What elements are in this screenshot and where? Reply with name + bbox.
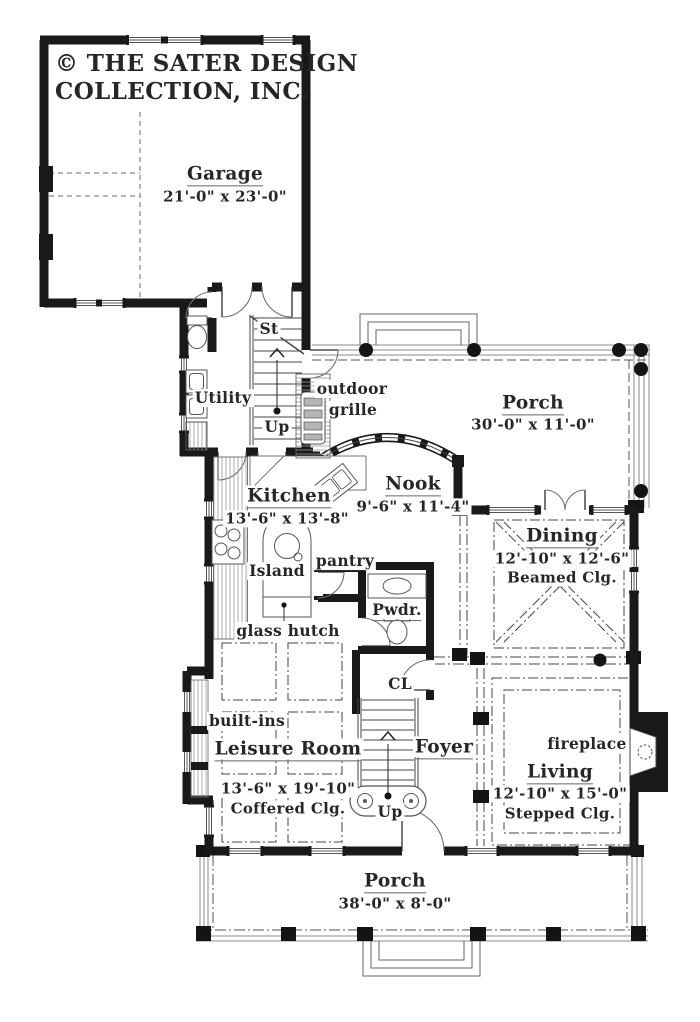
copyright-line1: © THE SATER DESIGN [55,50,358,78]
foyer-label: Foyer [413,736,475,757]
powder-label: Pwdr. [370,601,423,619]
built-ins-shelving [191,680,208,797]
kitchen-dims: 13'-6" x 13'-8" [223,510,351,527]
garage-ceiling-lines [49,112,140,299]
porch-top-dims: 30'-0" x 11'-0" [469,416,597,433]
fireplace-structure [630,712,668,792]
dining-dims: 12'-10" x 12'-6" [493,550,632,567]
glass-hutch-label: glass hutch [234,622,341,640]
dining-label: Dining [524,525,600,546]
living-label: Living [525,761,595,782]
island-label: Island [247,562,307,580]
up-back-label: Up [263,418,292,436]
toilet-icon [187,316,207,349]
stairs-st-label: St [258,320,281,338]
porch-top-label: Porch [500,392,566,413]
dining-ceiling: Beamed Clg. [505,569,619,586]
built-ins-label: built-ins [207,712,287,730]
back-stairs-dot [274,408,281,415]
copyright-text: © THE SATER DESIGN COLLECTION, INC. [55,50,358,106]
copyright-line2: COLLECTION, INC. [55,78,358,106]
porch-bottom-dims: 38'-0" x 8'-0" [336,895,453,912]
washer-dryer-icons [186,370,207,450]
fireplace-label: fireplace [545,735,628,753]
nook-dims: 9'-6" x 11'-4" [354,498,471,515]
leisure-ceiling: Coffered Clg. [229,800,348,817]
outdoor-grille-label-1: outdoor [315,380,390,398]
utility-label: Utility [193,389,254,407]
pantry-label: pantry [314,552,376,570]
living-ceiling: Stepped Clg. [503,805,617,822]
floor-plan: © THE SATER DESIGN COLLECTION, INC. Gara… [0,0,700,1022]
kitchen-label: Kitchen [245,485,333,506]
leisure-dims: 13'-6" x 19'-10" [219,780,358,797]
outdoor-grille-label-2: grille [327,401,379,419]
living-dims: 12'-10" x 15'-0" [491,785,630,802]
up-front-label: Up [376,803,405,821]
garage-dims: 21'-0" x 23'-0" [161,188,289,205]
porch-bottom-label: Porch [362,870,428,891]
front-stairs-dot [385,793,392,800]
garage-label: Garage [185,163,265,184]
closet-label: CL [386,675,414,693]
leisure-label: Leisure Room [213,738,364,759]
nook-label: Nook [383,473,443,494]
